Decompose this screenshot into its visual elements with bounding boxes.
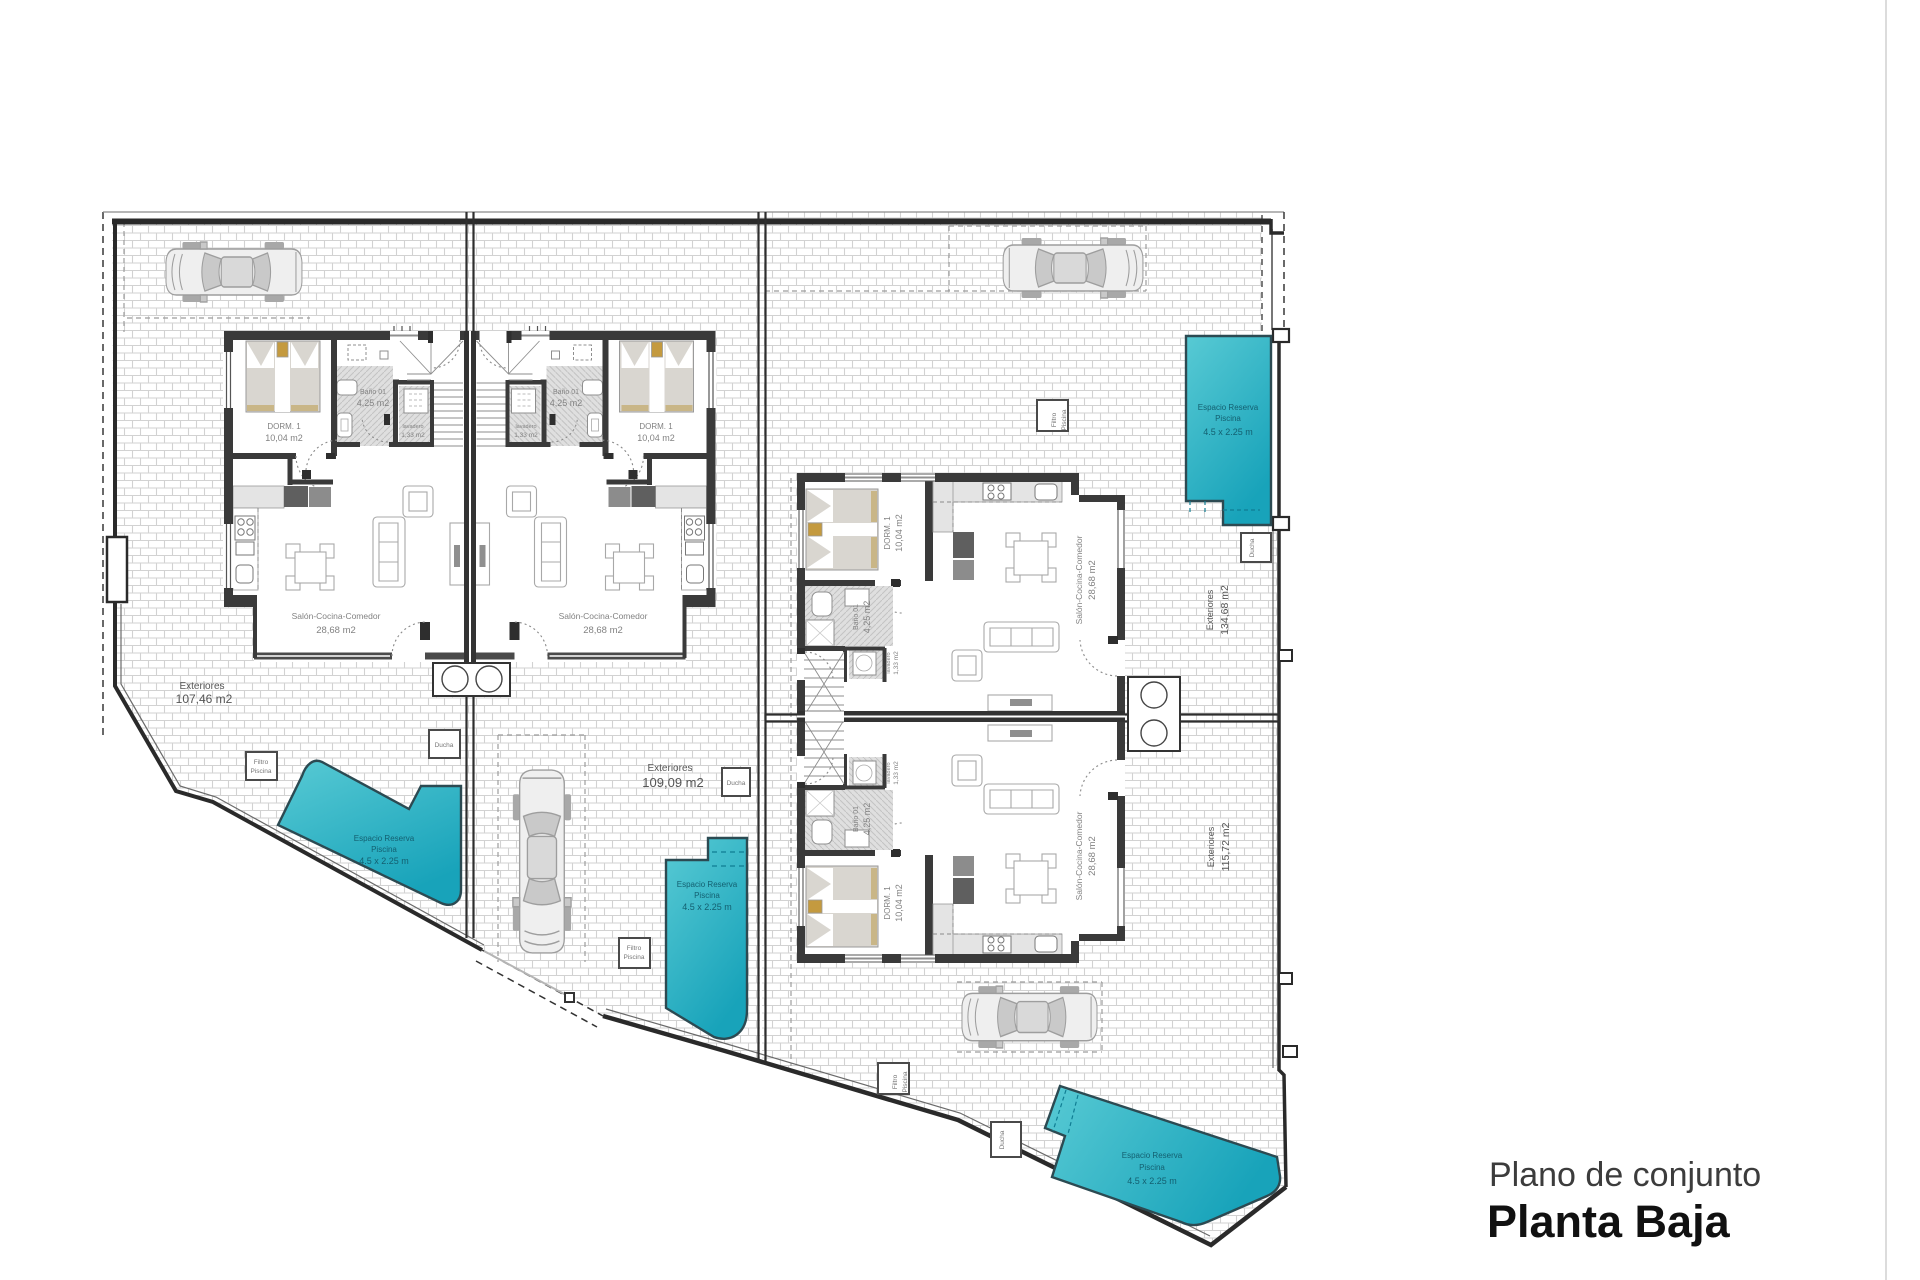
- svg-text:115,72 m2: 115,72 m2: [1220, 822, 1232, 871]
- svg-text:4.5 x 2.25 m: 4.5 x 2.25 m: [682, 902, 732, 912]
- svg-text:Baño 01: Baño 01: [853, 604, 860, 630]
- svg-text:Espacio Reserva: Espacio Reserva: [1122, 1151, 1183, 1160]
- svg-text:DORM. 1: DORM. 1: [883, 516, 892, 550]
- svg-text:lavadero: lavadero: [886, 652, 892, 673]
- svg-text:109,09 m2: 109,09 m2: [642, 775, 703, 790]
- svg-text:Ducha: Ducha: [999, 1130, 1006, 1149]
- svg-text:4,25 m2: 4,25 m2: [550, 398, 583, 408]
- svg-text:Ducha: Ducha: [1249, 538, 1256, 557]
- svg-text:Piscina: Piscina: [624, 954, 645, 961]
- svg-text:DORM. 1: DORM. 1: [267, 422, 301, 431]
- svg-text:Piscina: Piscina: [694, 891, 720, 900]
- svg-text:Ducha: Ducha: [727, 780, 746, 787]
- svg-text:Exteriores: Exteriores: [1205, 589, 1215, 630]
- svg-text:4.5 x 2.25 m: 4.5 x 2.25 m: [1203, 427, 1253, 437]
- svg-text:134,68 m2: 134,68 m2: [1219, 585, 1231, 635]
- svg-text:Espacio Reserva: Espacio Reserva: [677, 880, 738, 889]
- svg-text:lavadero: lavadero: [515, 424, 536, 430]
- svg-text:lavadero: lavadero: [886, 762, 892, 783]
- svg-text:Salón-Cocina-Comedor: Salón-Cocina-Comedor: [559, 611, 648, 621]
- svg-text:28,68 m2: 28,68 m2: [1087, 560, 1098, 600]
- svg-text:Exteriores: Exteriores: [647, 763, 692, 774]
- svg-text:Piscina: Piscina: [371, 845, 397, 854]
- svg-text:1,33 m2: 1,33 m2: [893, 761, 900, 785]
- svg-text:28,68 m2: 28,68 m2: [583, 625, 623, 636]
- svg-text:4.5 x 2.25 m: 4.5 x 2.25 m: [1127, 1176, 1177, 1186]
- svg-text:Baño 01: Baño 01: [553, 389, 579, 396]
- svg-text:Filtro: Filtro: [254, 759, 269, 766]
- svg-text:lavadero: lavadero: [402, 424, 423, 430]
- svg-text:28,68 m2: 28,68 m2: [316, 625, 356, 636]
- svg-text:Piscina: Piscina: [1215, 414, 1241, 423]
- svg-text:Ducha: Ducha: [435, 742, 454, 749]
- svg-text:DORM. 1: DORM. 1: [883, 886, 892, 920]
- svg-text:Salón-Cocina-Comedor: Salón-Cocina-Comedor: [1074, 811, 1084, 900]
- svg-text:1,33 m2: 1,33 m2: [893, 651, 900, 675]
- svg-text:Salón-Cocina-Comedor: Salón-Cocina-Comedor: [1074, 535, 1084, 624]
- svg-text:1,33 m2: 1,33 m2: [401, 432, 425, 439]
- svg-text:107,46 m2: 107,46 m2: [176, 692, 233, 706]
- svg-text:4,25 m2: 4,25 m2: [357, 398, 390, 408]
- svg-text:Exteriores: Exteriores: [1206, 826, 1216, 867]
- svg-text:Plano de conjunto: Plano de conjunto: [1489, 1156, 1761, 1194]
- svg-text:Salón-Cocina-Comedor: Salón-Cocina-Comedor: [292, 611, 381, 621]
- svg-text:Piscina: Piscina: [1061, 409, 1068, 430]
- svg-text:DORM. 1: DORM. 1: [639, 422, 673, 431]
- svg-text:1,33 m2: 1,33 m2: [514, 432, 538, 439]
- svg-text:Filtro: Filtro: [1051, 412, 1058, 427]
- svg-text:4,25 m2: 4,25 m2: [862, 803, 872, 836]
- svg-text:10,04 m2: 10,04 m2: [265, 433, 303, 443]
- svg-text:Piscina: Piscina: [251, 768, 272, 775]
- svg-text:4.5 x 2.25 m: 4.5 x 2.25 m: [359, 856, 409, 866]
- svg-text:Piscina: Piscina: [1139, 1163, 1165, 1172]
- svg-text:Filtro: Filtro: [627, 945, 642, 952]
- svg-text:Filtro: Filtro: [892, 1074, 899, 1089]
- svg-text:Planta Baja: Planta Baja: [1487, 1196, 1731, 1247]
- svg-text:4,25 m2: 4,25 m2: [862, 601, 872, 634]
- svg-text:Baño 01: Baño 01: [853, 806, 860, 832]
- svg-text:28,68 m2: 28,68 m2: [1087, 836, 1098, 876]
- svg-text:Exteriores: Exteriores: [179, 681, 224, 692]
- svg-text:Espacio Reserva: Espacio Reserva: [354, 834, 415, 843]
- svg-text:10,04 m2: 10,04 m2: [894, 884, 904, 922]
- svg-text:Espacio Reserva: Espacio Reserva: [1198, 403, 1259, 412]
- svg-text:10,04 m2: 10,04 m2: [637, 433, 675, 443]
- svg-text:Baño 01: Baño 01: [360, 389, 386, 396]
- svg-text:Piscina: Piscina: [902, 1071, 909, 1092]
- svg-text:10,04 m2: 10,04 m2: [894, 514, 904, 552]
